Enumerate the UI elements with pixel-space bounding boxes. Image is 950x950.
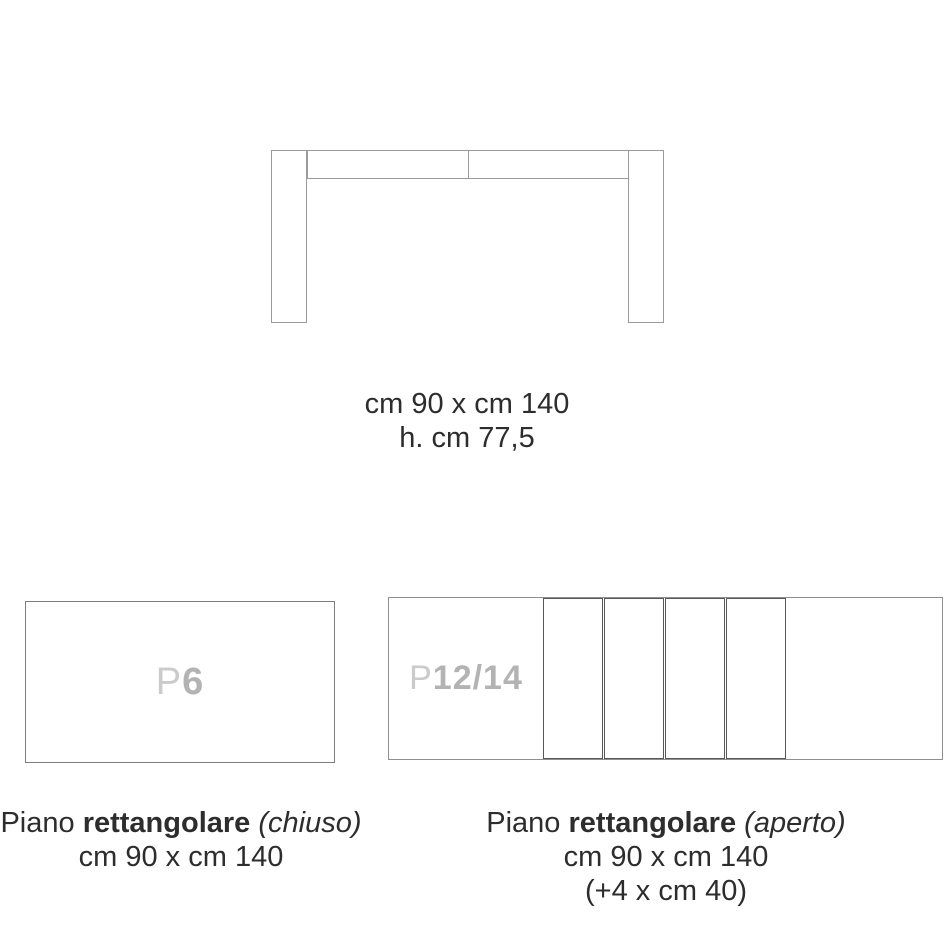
front-view-height: h. cm 77,5 <box>267 421 667 455</box>
extension-leaf <box>543 598 603 759</box>
caption-open-italic: (aperto) <box>744 807 846 839</box>
caption-open-extension: (+4 x cm 40) <box>485 874 847 908</box>
caption-open-bold: rettangolare <box>569 807 737 839</box>
caption-open-regular: Piano <box>486 807 560 839</box>
extension-leaf <box>604 598 664 759</box>
open-plate-label: P12/14 <box>389 598 543 759</box>
open-plate-value: 12/14 <box>433 659 523 698</box>
caption-closed-bold: rettangolare <box>83 807 251 839</box>
closed-plate-prefix: P <box>156 661 182 704</box>
caption-closed-regular: Piano <box>0 807 74 839</box>
top-view-closed: P6 <box>25 601 335 763</box>
closed-plate-value: 6 <box>182 661 204 704</box>
front-view-size: cm 90 x cm 140 <box>267 387 667 421</box>
caption-open: Piano rettangolare (aperto) cm 90 x cm 1… <box>485 806 847 908</box>
extension-leaf <box>665 598 725 759</box>
top-view-open: P12/14 <box>388 597 943 760</box>
caption-closed-dimensions: cm 90 x cm 140 <box>0 840 362 874</box>
spec-sheet: cm 90 x cm 140 h. cm 77,5 P6 P12/14 Pian… <box>0 0 950 950</box>
caption-open-title: Piano rettangolare (aperto) <box>485 806 847 840</box>
caption-open-dimensions: cm 90 x cm 140 <box>485 840 847 874</box>
caption-closed-title: Piano rettangolare (chiuso) <box>0 806 362 840</box>
open-plate-prefix: P <box>409 659 433 698</box>
extension-leaves <box>543 598 786 759</box>
table-leg-left <box>271 150 307 323</box>
closed-plate-label: P6 <box>26 602 334 762</box>
front-view-dimensions: cm 90 x cm 140 h. cm 77,5 <box>267 387 667 455</box>
extension-leaf <box>726 598 786 759</box>
table-apron <box>307 150 629 179</box>
apron-divider-line <box>468 151 469 178</box>
caption-closed-italic: (chiuso) <box>258 807 361 839</box>
table-leg-right <box>628 150 664 323</box>
caption-closed: Piano rettangolare (chiuso) cm 90 x cm 1… <box>0 806 362 874</box>
